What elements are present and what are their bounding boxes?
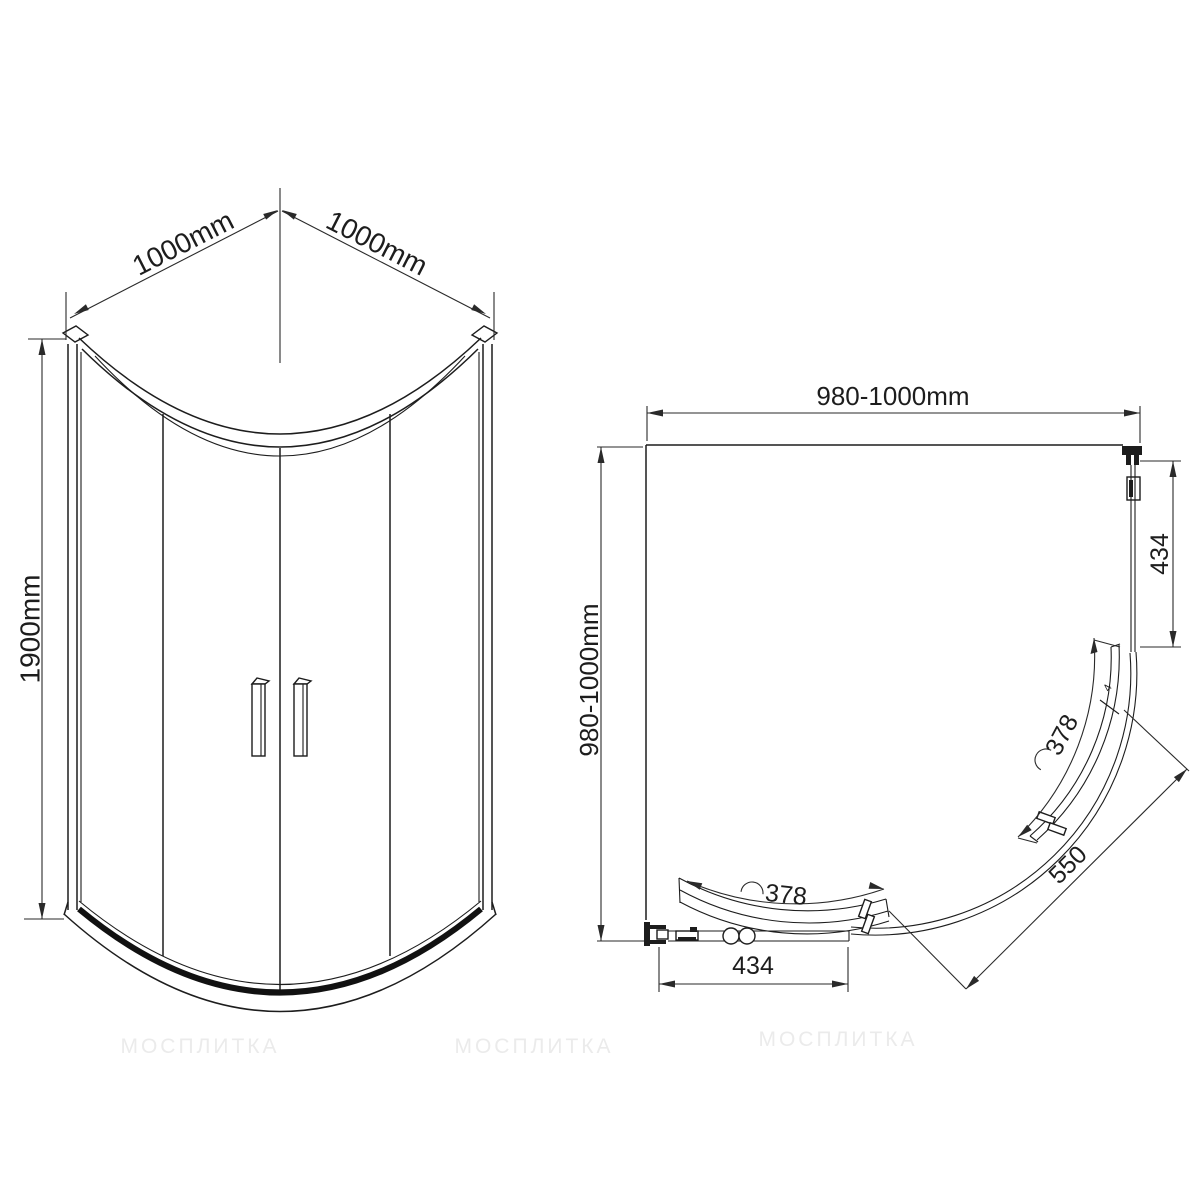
watermark-text: МОСПЛИТКА: [454, 1035, 613, 1058]
watermark-text: МОСПЛИТКА: [120, 1035, 279, 1058]
roller-icon: [723, 928, 739, 944]
front-width-dimensions: 1000mm 1000mm: [66, 188, 494, 363]
plan-walls: [646, 445, 1123, 920]
right-panel-dimension-label: 434: [1146, 533, 1174, 575]
arc-symbol-icon: [741, 881, 764, 894]
right-door-handle-icon: [294, 684, 307, 756]
bottom-panel-dimension-label: 434: [732, 952, 774, 980]
roller-icon: [739, 928, 755, 944]
handle-cap-icon: [252, 678, 269, 684]
bottom-door-arc-dimension-label: 378: [764, 879, 808, 911]
plan-depth-dimension-label: 980-1000mm: [574, 603, 604, 756]
shower-enclosure-dimension-drawing: 1900mm 1000mm 1000mm: [0, 0, 1200, 1200]
handle-cap-icon: [294, 678, 311, 684]
plan-view: 4 378: [574, 381, 1189, 992]
plan-curved-track: [851, 652, 1137, 935]
plan-bottom-left-corner-post: [644, 922, 668, 946]
right-panel-dimension: 434: [1140, 461, 1181, 647]
glass-thickness-label: 4: [1101, 682, 1114, 693]
watermark-text: МОСПЛИТКА: [758, 1028, 917, 1051]
left-door-handle-icon: [252, 684, 265, 756]
plan-depth-dimension: 980-1000mm: [574, 447, 644, 941]
bottom-panel-dimension: 434: [659, 947, 848, 992]
front-elevation-view: 1900mm 1000mm 1000mm: [15, 188, 498, 1012]
front-door-handles: [252, 678, 311, 756]
front-width-right-dimension-label: 1000mm: [321, 204, 432, 281]
watermarks: МОСПЛИТКА МОСПЛИТКА МОСПЛИТКА: [120, 1028, 917, 1058]
upper-door-arc-dimension-label: 378: [1040, 710, 1084, 760]
entry-diagonal-dimension-label: 550: [1043, 840, 1092, 889]
front-height-dimension-label: 1900mm: [15, 575, 46, 684]
plan-width-dimension: 980-1000mm: [647, 381, 1140, 443]
plan-width-dimension-label: 980-1000mm: [816, 381, 969, 411]
front-width-left-dimension-label: 1000mm: [127, 204, 238, 281]
drawing-svg: 1900mm 1000mm 1000mm: [0, 0, 1200, 1200]
front-glass-dividers: [163, 414, 390, 990]
front-height-dimension: 1900mm: [15, 339, 67, 919]
post-cap-icon: [63, 326, 88, 342]
front-right-post: [472, 326, 497, 910]
post-cap-icon: [472, 326, 497, 342]
plan-top-right-corner-post: [1122, 446, 1142, 500]
front-left-post: [63, 326, 88, 910]
